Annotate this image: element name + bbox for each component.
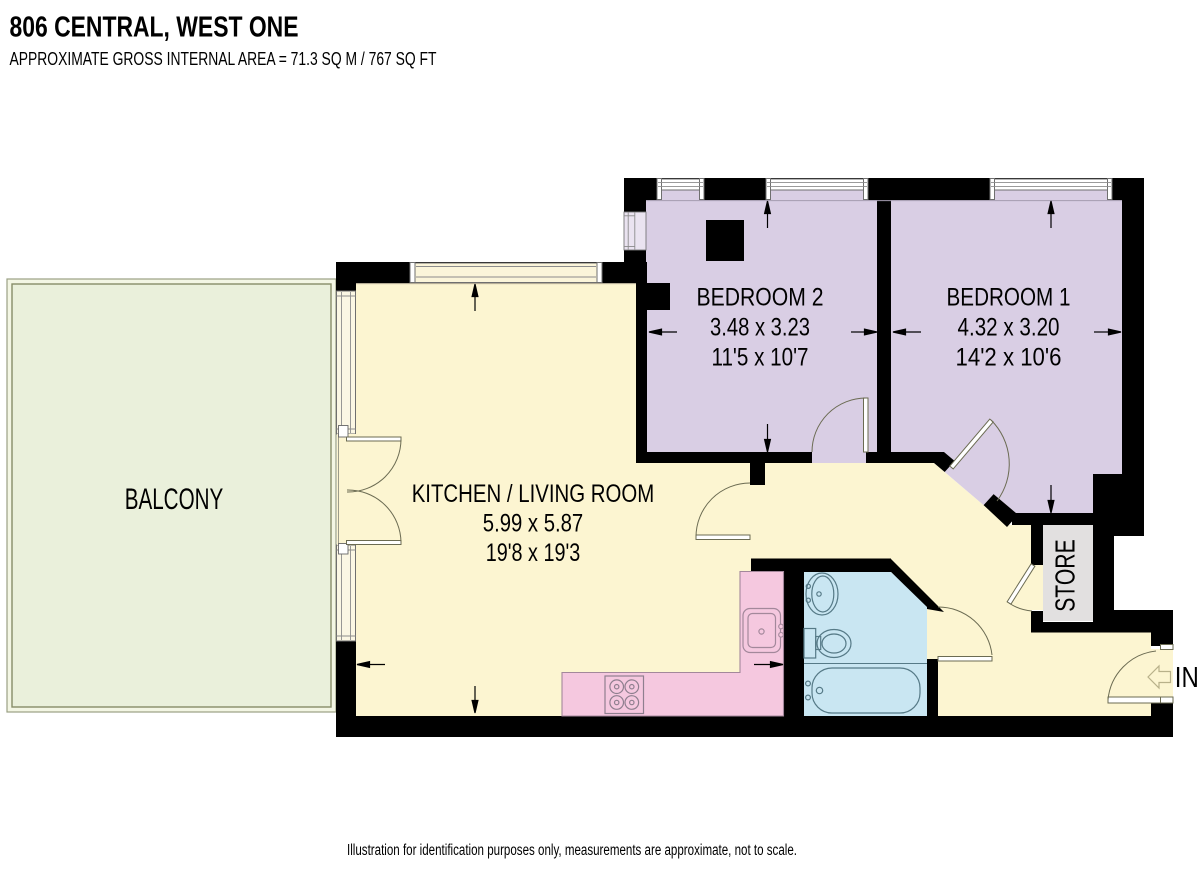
svg-text:BALCONY: BALCONY [125,483,224,516]
svg-text:STORE: STORE [1050,539,1081,612]
svg-text:14'2 x 10'6: 14'2 x 10'6 [956,343,1062,371]
svg-text:11'5 x 10'7: 11'5 x 10'7 [712,343,809,371]
svg-text:4.32 x 3.20: 4.32 x 3.20 [958,313,1060,341]
svg-text:BEDROOM 1: BEDROOM 1 [947,284,1071,312]
svg-text:3.48 x 3.23: 3.48 x 3.23 [710,313,810,341]
svg-text:19'8 x 19'3: 19'8 x 19'3 [486,539,581,567]
svg-text:APPROXIMATE GROSS INTERNAL ARE: APPROXIMATE GROSS INTERNAL AREA = 71.3 S… [10,48,437,69]
svg-text:806 CENTRAL, WEST ONE: 806 CENTRAL, WEST ONE [10,12,299,44]
svg-text:BEDROOM 2: BEDROOM 2 [697,284,824,312]
svg-text:Illustration for identificatio: Illustration for identification purposes… [347,842,797,859]
svg-text:KITCHEN / LIVING ROOM: KITCHEN / LIVING ROOM [412,480,655,508]
svg-text:IN: IN [1175,662,1199,694]
svg-text:5.99 x 5.87: 5.99 x 5.87 [483,509,583,537]
